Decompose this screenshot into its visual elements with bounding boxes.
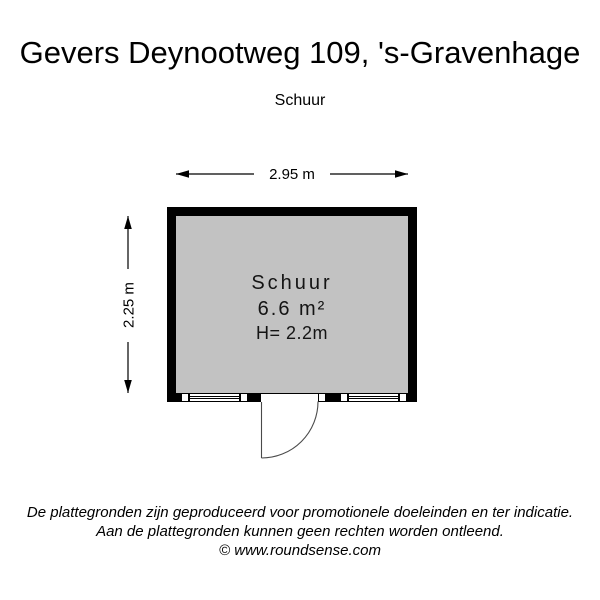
window-jamb	[241, 394, 248, 402]
room-labels: Schuur 6.6 m² H= 2.2m	[251, 272, 332, 343]
door	[262, 402, 319, 459]
window-jamb	[341, 394, 348, 402]
door-opening	[261, 393, 318, 402]
disclaimer-line-1: De plattegronden zijn geproduceerd voor …	[0, 503, 600, 522]
room-name-label: Schuur	[251, 272, 332, 294]
footer-disclaimer: De plattegronden zijn geproduceerd voor …	[0, 503, 600, 560]
width-dimension: 2.95 m	[176, 166, 408, 183]
arrow-down-icon	[124, 380, 132, 393]
window-left	[190, 394, 240, 402]
disclaimer-line-2: Aan de plattegronden kunnen geen rechten…	[0, 522, 600, 541]
window-right	[349, 394, 399, 402]
height-dimension-label: 2.25 m	[120, 282, 137, 328]
room-ceiling-height-label: H= 2.2m	[256, 323, 328, 343]
room-area-label: 6.6 m²	[258, 298, 327, 320]
door-swing-arc	[262, 402, 319, 459]
arrow-right-icon	[395, 170, 408, 178]
bottom-wall-openings	[182, 393, 407, 402]
arrow-up-icon	[124, 216, 132, 229]
copyright-line: © www.roundsense.com	[0, 541, 600, 560]
window-jamb	[319, 394, 326, 402]
arrow-left-icon	[176, 170, 189, 178]
floorplan-page: Gevers Deynootweg 109, 's-Gravenhage Sch…	[0, 0, 600, 600]
height-dimension: 2.25 m	[120, 216, 137, 393]
width-dimension-label: 2.95 m	[269, 166, 315, 183]
room-schuur: Schuur 6.6 m² H= 2.2m	[167, 207, 417, 458]
window-jamb	[182, 394, 189, 402]
window-jamb	[400, 394, 407, 402]
